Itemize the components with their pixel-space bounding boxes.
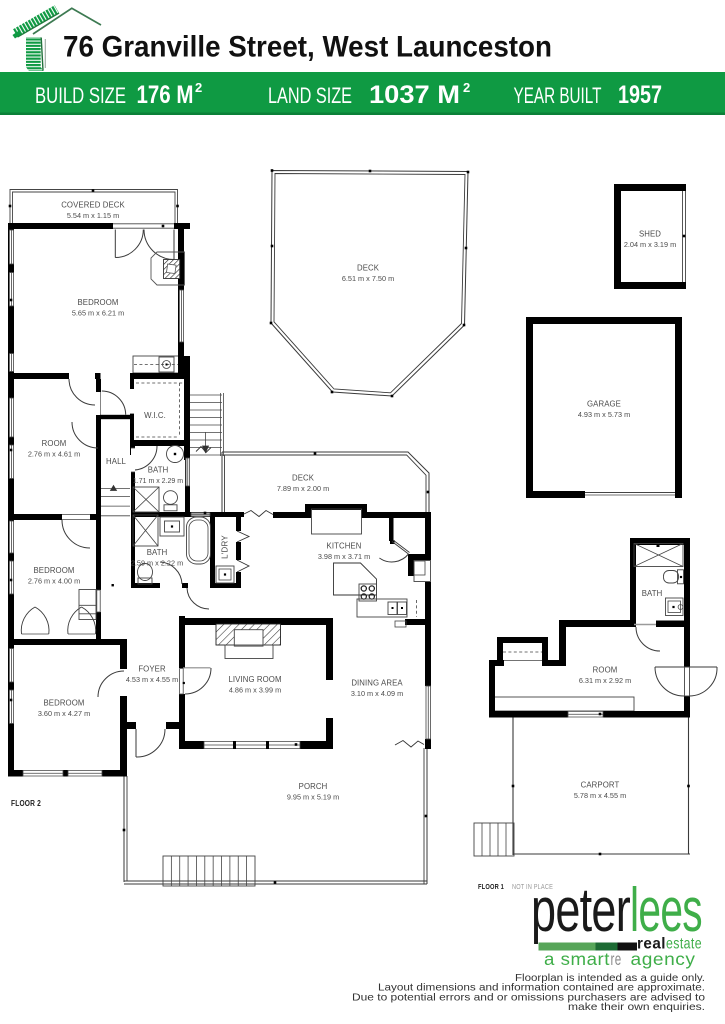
svg-text:PORCH: PORCH xyxy=(299,782,328,791)
svg-text:LAND SIZE: LAND SIZE xyxy=(268,83,352,108)
svg-text:W.I.C.: W.I.C. xyxy=(144,411,166,420)
svg-text:BATH: BATH xyxy=(642,589,663,598)
svg-text:DECK: DECK xyxy=(292,474,315,483)
svg-text:6.31 m x 2.92 m: 6.31 m x 2.92 m xyxy=(579,676,631,685)
svg-text:FOYER: FOYER xyxy=(138,665,166,674)
svg-text:2: 2 xyxy=(463,80,470,95)
svg-text:5.54 m x 1.15 m: 5.54 m x 1.15 m xyxy=(67,211,119,220)
svg-text:SHED: SHED xyxy=(639,230,661,239)
svg-text:2.59 m x 2.22 m: 2.59 m x 2.22 m xyxy=(131,559,183,568)
svg-text:a smart: a smart xyxy=(544,949,610,969)
svg-text:BEDROOM: BEDROOM xyxy=(44,699,85,708)
svg-text:DECK: DECK xyxy=(357,264,380,273)
svg-text:2: 2 xyxy=(195,80,202,95)
svg-text:2.04 m x 3.19 m: 2.04 m x 3.19 m xyxy=(624,240,676,249)
svg-text:4.93 m x 5.73 m: 4.93 m x 5.73 m xyxy=(578,410,630,419)
svg-text:LIVING ROOM: LIVING ROOM xyxy=(228,675,281,684)
svg-text:1.71 m x 2.29 m: 1.71 m x 2.29 m xyxy=(133,478,183,485)
svg-text:COVERED DECK: COVERED DECK xyxy=(61,201,125,210)
svg-text:5.65 m x 6.21 m: 5.65 m x 6.21 m xyxy=(72,309,124,318)
svg-text:1037 M: 1037 M xyxy=(369,81,460,109)
svg-text:FLOOR 2: FLOOR 2 xyxy=(11,799,41,808)
svg-text:GARAGE: GARAGE xyxy=(587,400,621,409)
svg-text:9.95 m x 5.19 m: 9.95 m x 5.19 m xyxy=(287,793,339,802)
svg-text:4.86 m x 3.99 m: 4.86 m x 3.99 m xyxy=(229,686,281,695)
svg-text:KITCHEN: KITCHEN xyxy=(327,542,362,551)
svg-text:6.51 m x 7.50 m: 6.51 m x 7.50 m xyxy=(342,274,394,283)
svg-text:3.10 m x 4.09 m: 3.10 m x 4.09 m xyxy=(351,689,403,698)
svg-text:HALL: HALL xyxy=(106,457,126,466)
svg-text:re: re xyxy=(611,949,622,969)
svg-text:BATH: BATH xyxy=(147,548,168,557)
svg-text:76 Granville Street, West Laun: 76 Granville Street, West Launceston xyxy=(63,31,552,64)
svg-text:5.78 m x 4.55 m: 5.78 m x 4.55 m xyxy=(574,791,626,800)
svg-text:1957: 1957 xyxy=(618,81,662,109)
svg-text:BEDROOM: BEDROOM xyxy=(34,566,75,575)
svg-text:CARPORT: CARPORT xyxy=(581,781,620,790)
svg-text:3.60 m x 4.27 m: 3.60 m x 4.27 m xyxy=(38,709,90,718)
svg-text:BUILD SIZE: BUILD SIZE xyxy=(35,83,126,108)
svg-text:2.76 m x 4.61 m: 2.76 m x 4.61 m xyxy=(28,450,80,459)
svg-text:BEDROOM: BEDROOM xyxy=(78,298,119,307)
svg-text:ROOM: ROOM xyxy=(593,666,618,675)
svg-text:3.98 m x 3.71 m: 3.98 m x 3.71 m xyxy=(318,552,370,561)
svg-text:DINING AREA: DINING AREA xyxy=(351,679,403,688)
svg-text:7.89 m x 2.00 m: 7.89 m x 2.00 m xyxy=(277,484,329,493)
svg-text:agency: agency xyxy=(631,949,696,969)
svg-text:2.76 m x 4.00 m: 2.76 m x 4.00 m xyxy=(28,577,80,586)
svg-text:peter: peter xyxy=(531,876,630,945)
svg-text:make their own enquiries.: make their own enquiries. xyxy=(568,1002,705,1013)
svg-text:4.53 m x 4.55 m: 4.53 m x 4.55 m xyxy=(126,675,178,684)
svg-text:L'DRY: L'DRY xyxy=(221,535,230,559)
svg-text:ROOM: ROOM xyxy=(42,439,67,448)
svg-text:BATH: BATH xyxy=(148,466,169,475)
svg-text:YEAR BUILT: YEAR BUILT xyxy=(514,83,602,108)
svg-text:FLOOR 1: FLOOR 1 xyxy=(478,882,504,891)
svg-text:176 M: 176 M xyxy=(137,81,194,109)
